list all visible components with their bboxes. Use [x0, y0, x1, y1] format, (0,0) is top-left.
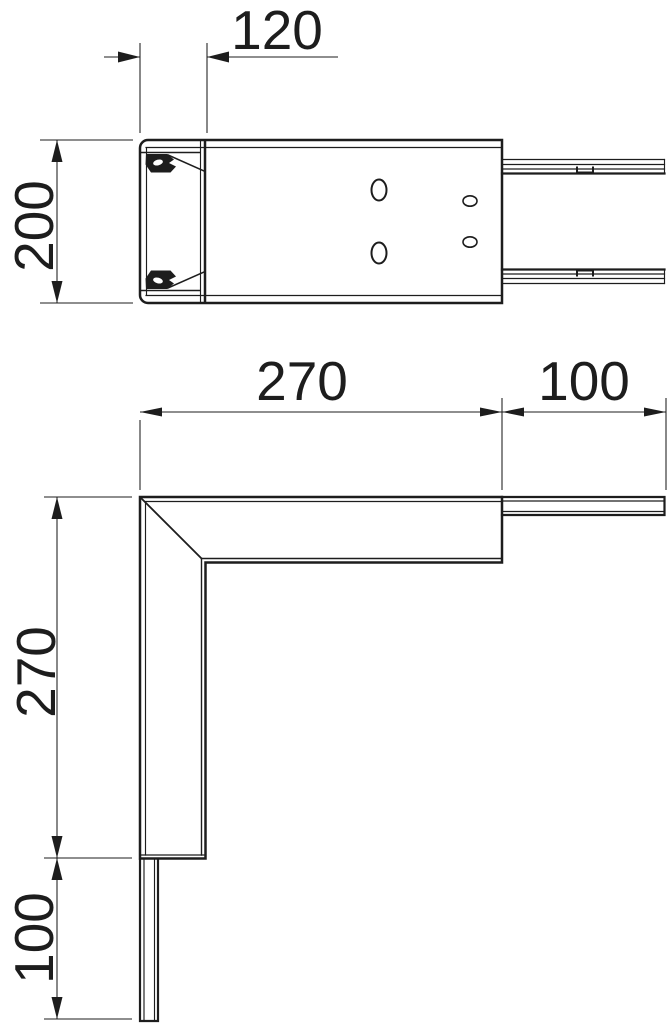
arrowhead	[52, 858, 63, 880]
trunking-profile-bottom	[140, 860, 158, 1021]
dim-label-height: 200	[3, 180, 65, 272]
slot-hole	[372, 243, 387, 264]
latch-notch	[577, 168, 593, 173]
round-hole	[463, 196, 477, 206]
dim-label-duct-horizontal: 100	[538, 350, 630, 412]
dim-label-offset: 120	[231, 0, 323, 61]
dim-label-leg-vertical: 270	[5, 626, 67, 718]
cover-outline	[140, 140, 502, 303]
dim-height: 200	[3, 140, 133, 303]
latch-notch	[577, 271, 593, 276]
arrowhead	[52, 997, 63, 1019]
dim-offset: 120	[104, 0, 338, 133]
arrowhead	[502, 408, 524, 417]
dim-label-leg-horizontal: 270	[256, 350, 348, 412]
arrowhead	[644, 408, 666, 417]
duct-outline	[502, 497, 665, 515]
trunking-profile-right	[502, 497, 665, 515]
duct-outline	[140, 860, 158, 1021]
dim-horizontal: 270 100	[140, 350, 666, 490]
corner-piece-drawing: 120 200	[0, 0, 668, 1024]
dim-label-duct-vertical: 100	[3, 892, 65, 984]
top-view: 120 200	[3, 0, 665, 303]
corner-view: 270 100 270 100	[3, 350, 666, 1021]
dim-vertical: 270 100	[3, 497, 132, 1019]
arrowhead	[52, 497, 63, 519]
top-view-part	[140, 140, 665, 303]
corner-view-part	[140, 497, 665, 1021]
arrowhead	[52, 281, 63, 303]
arrowhead	[207, 52, 229, 63]
round-hole	[463, 237, 477, 247]
trunking-profile-right	[502, 160, 665, 284]
technical-drawing-canvas: 120 200	[0, 0, 668, 1024]
arrowhead	[52, 836, 63, 858]
arrowhead	[118, 52, 140, 63]
miter-line	[142, 499, 202, 559]
slot-hole	[372, 180, 387, 201]
arrowhead	[480, 408, 502, 417]
arrowhead	[52, 140, 63, 162]
arrowhead	[140, 408, 162, 417]
